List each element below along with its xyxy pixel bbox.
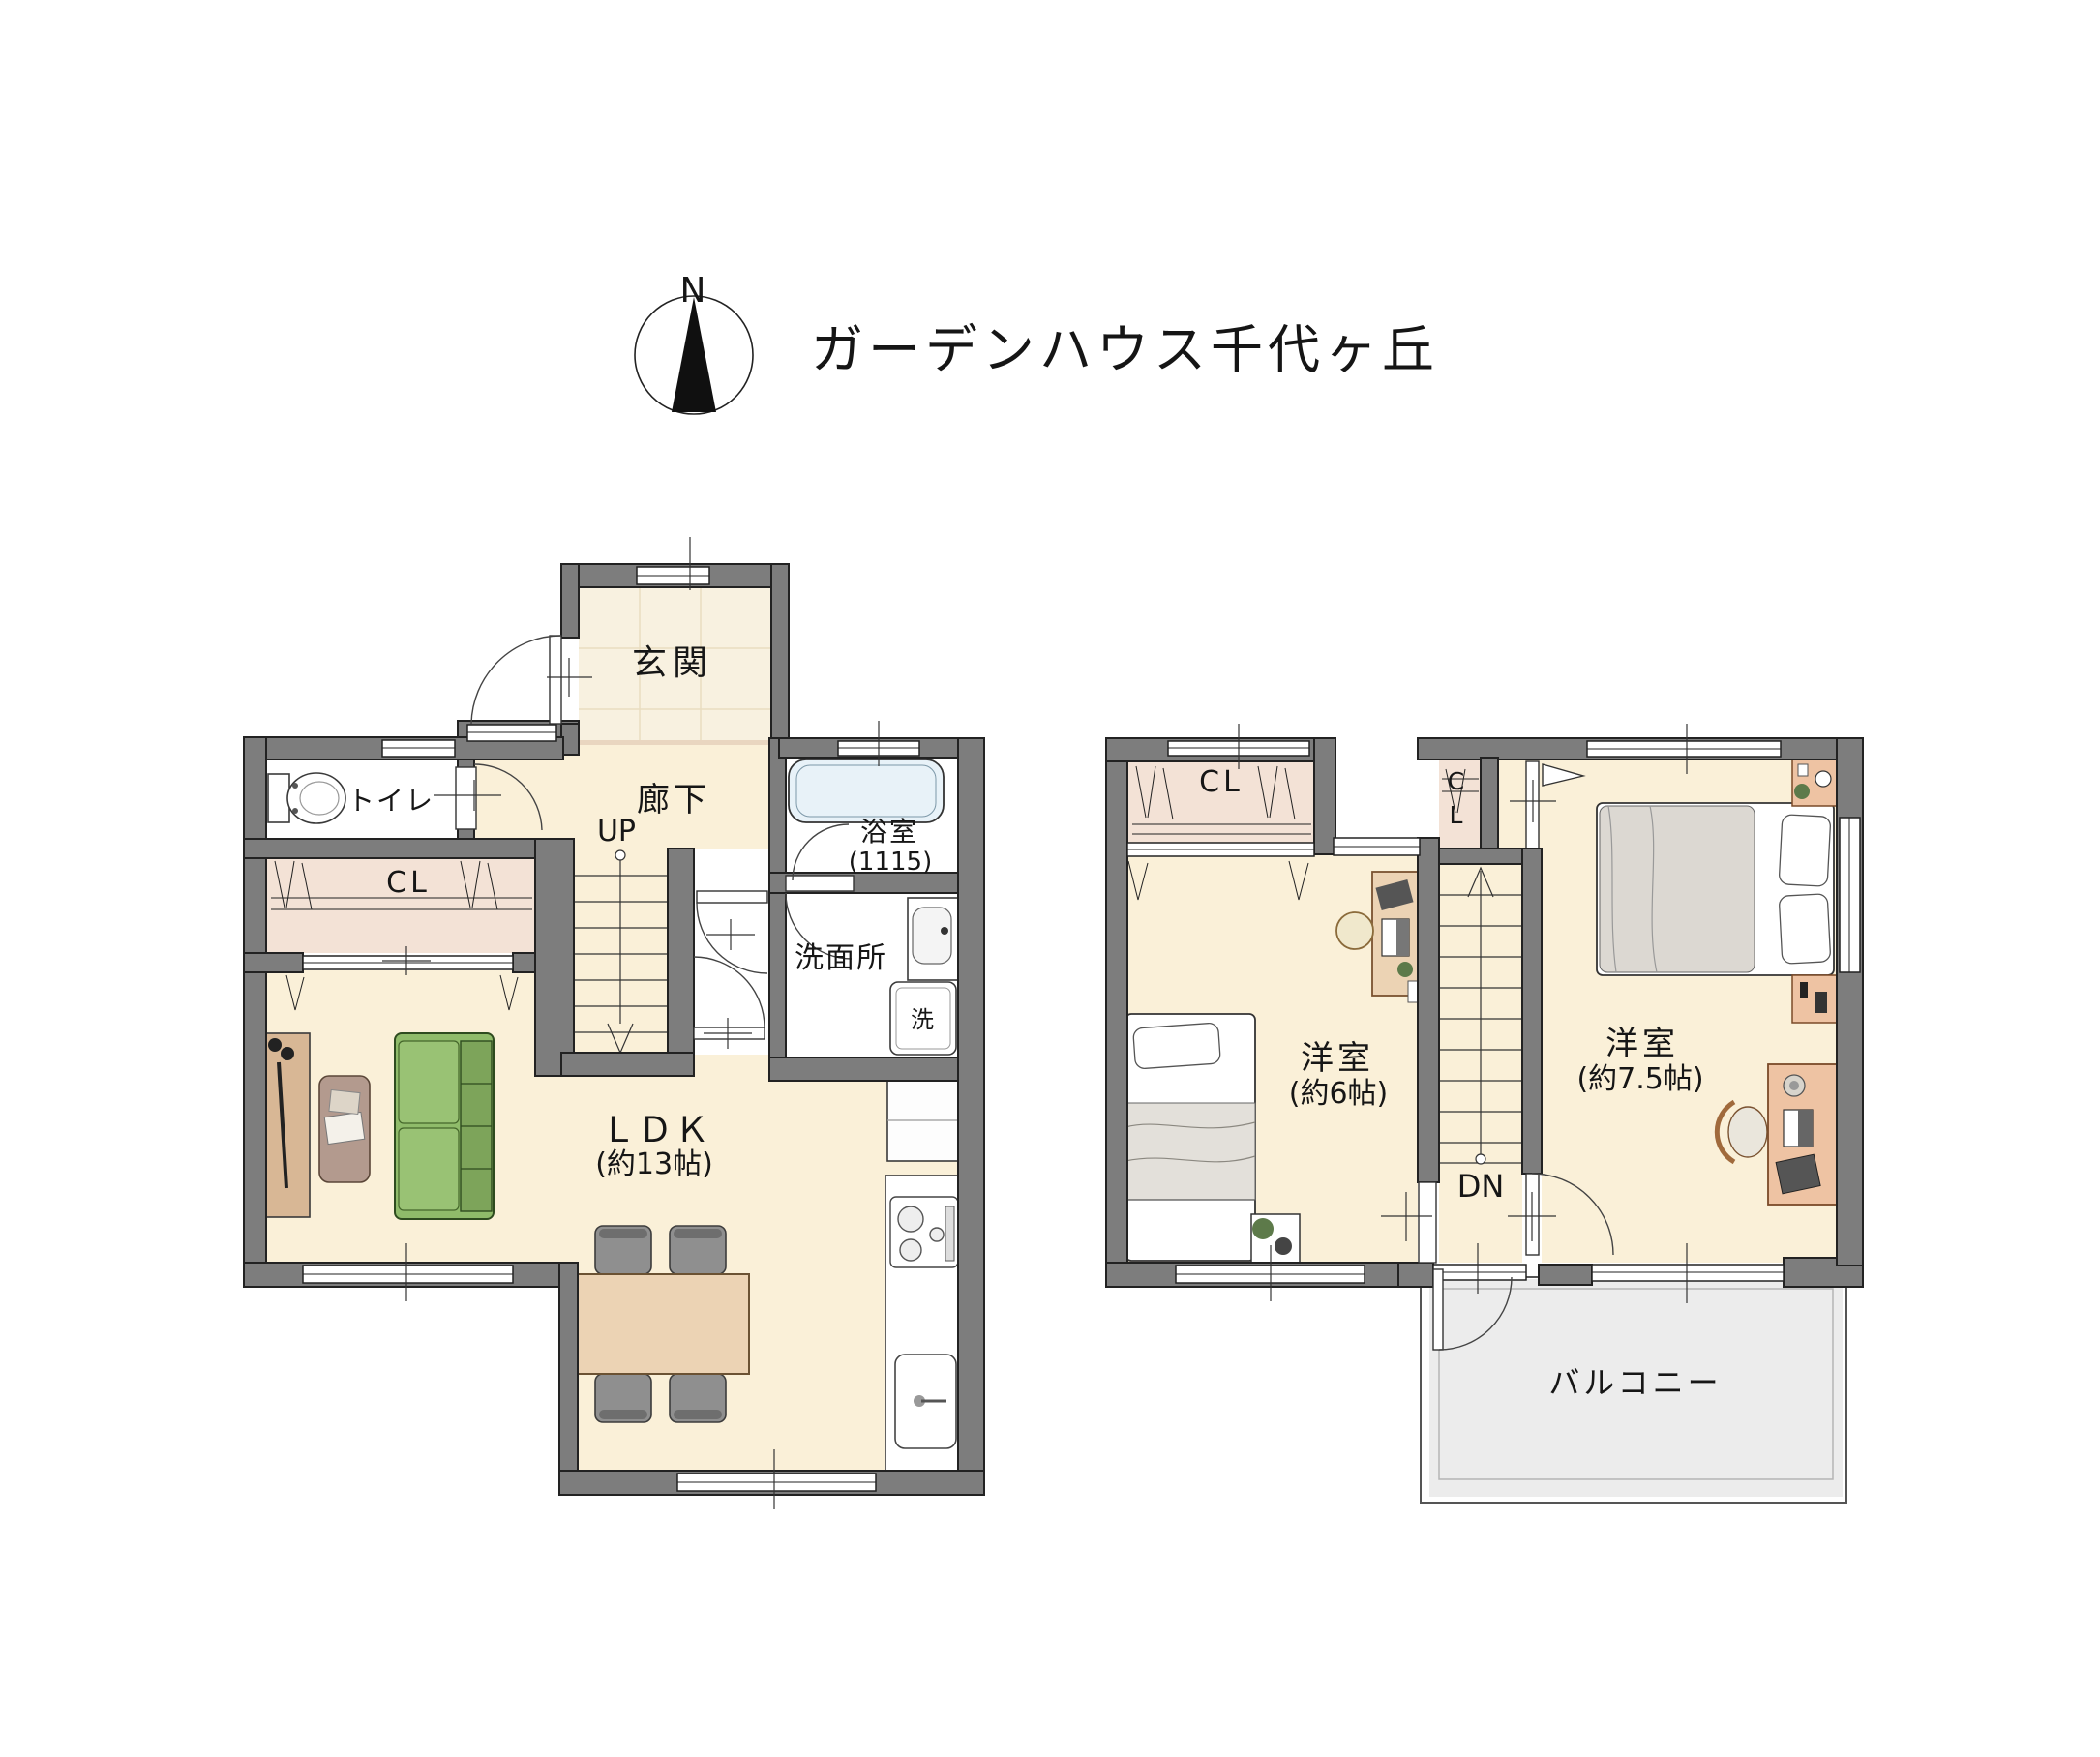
kitchen-counter bbox=[885, 1079, 960, 1471]
stairs-up-label: UP bbox=[597, 815, 636, 849]
window bbox=[637, 567, 709, 584]
stairs-down-label: DN bbox=[1457, 1168, 1505, 1205]
dining-table bbox=[578, 1274, 749, 1374]
room-label-bath: 浴室 bbox=[860, 816, 918, 848]
closet-sliding-door bbox=[303, 956, 513, 969]
room-label-genkan: 玄関 bbox=[632, 643, 713, 683]
plant-icon bbox=[1252, 1218, 1274, 1239]
chair-back bbox=[599, 1229, 647, 1238]
floor-plan-page: N ガーデンハウス千代ヶ丘 bbox=[0, 0, 2100, 1757]
room-label-toilet: トイレ bbox=[347, 785, 435, 817]
tv-board bbox=[266, 1033, 310, 1217]
window bbox=[677, 1474, 876, 1491]
toilet-fixture bbox=[268, 773, 345, 823]
gas-stove bbox=[890, 1197, 958, 1267]
clock-icon bbox=[1275, 1237, 1292, 1255]
washer-label: 洗 bbox=[911, 1006, 934, 1033]
nightstand bbox=[1792, 759, 1837, 806]
compass-n-label: N bbox=[680, 271, 706, 311]
bedroom-left-size-label: (約6帖) bbox=[1289, 1077, 1389, 1111]
sofa bbox=[395, 1033, 494, 1219]
window bbox=[382, 740, 455, 757]
pillow bbox=[1779, 815, 1831, 887]
room-label-washroom: 洗面所 bbox=[795, 941, 887, 975]
pillow bbox=[1779, 894, 1831, 965]
chair-back bbox=[599, 1410, 647, 1419]
plant-icon bbox=[1397, 962, 1413, 977]
ldk-size-label: (約13帖) bbox=[595, 1147, 713, 1181]
chair-back bbox=[674, 1410, 722, 1419]
stair-railing bbox=[1419, 1182, 1436, 1263]
compass-north-arrow-icon bbox=[672, 297, 716, 412]
room-label-ldk: ＬＤＫ bbox=[601, 1111, 711, 1150]
window bbox=[1592, 1265, 1784, 1281]
clock-icon bbox=[1815, 771, 1831, 787]
floor-plan-drawing: N ガーデンハウス千代ヶ丘 bbox=[0, 0, 2100, 1757]
bathtub bbox=[789, 759, 944, 822]
plant-icon bbox=[1794, 784, 1810, 799]
bath-size-label: (1115) bbox=[849, 848, 932, 877]
compass: N bbox=[635, 271, 753, 414]
closet-label-1f: CL bbox=[386, 866, 431, 900]
stool bbox=[1336, 912, 1373, 949]
duvet bbox=[1600, 806, 1755, 972]
window bbox=[467, 725, 556, 741]
window bbox=[1587, 741, 1781, 757]
room-label-balcony: バルコニー bbox=[1548, 1364, 1722, 1401]
closet-sliding-door bbox=[1127, 843, 1314, 856]
coffee-table bbox=[319, 1076, 370, 1182]
double-bed bbox=[1597, 803, 1834, 975]
room-label-hallway: 廊下 bbox=[637, 781, 710, 819]
pillow bbox=[1133, 1023, 1221, 1069]
window bbox=[1840, 818, 1860, 972]
blanket bbox=[1125, 1103, 1255, 1200]
room-label-bedroom-left: 洋室 bbox=[1301, 1039, 1374, 1078]
window bbox=[1334, 838, 1420, 855]
bedroom-right-size-label: (約7.5帖) bbox=[1576, 1062, 1703, 1096]
floor-plan-1f: 玄関 廊下 UP トイレ CL 浴室 (1115) 洗面所 洗 ＬＤＫ (約13… bbox=[244, 537, 984, 1509]
room-label-bedroom-right: 洋室 bbox=[1605, 1025, 1679, 1063]
chair-back bbox=[674, 1229, 722, 1238]
nightstand bbox=[1792, 975, 1837, 1023]
single-bed bbox=[1125, 1014, 1255, 1261]
kitchen-sink bbox=[895, 1355, 956, 1448]
closet-label-2f-right: CL bbox=[1439, 767, 1468, 852]
desk-chair bbox=[1728, 1107, 1767, 1157]
vanity-sink bbox=[908, 898, 958, 980]
closet-label-2f-left: CL bbox=[1199, 765, 1244, 799]
floor-plan-2f: CL 洋室 (約6帖) DN 洋室 (約7.5帖) バルコニー bbox=[1106, 724, 1863, 1503]
entrance-door bbox=[471, 636, 561, 724]
page-title: ガーデンハウス千代ヶ丘 bbox=[811, 319, 1439, 380]
window bbox=[303, 1266, 513, 1283]
inner-hall-floor bbox=[694, 849, 769, 1055]
nightstand bbox=[1251, 1214, 1300, 1263]
